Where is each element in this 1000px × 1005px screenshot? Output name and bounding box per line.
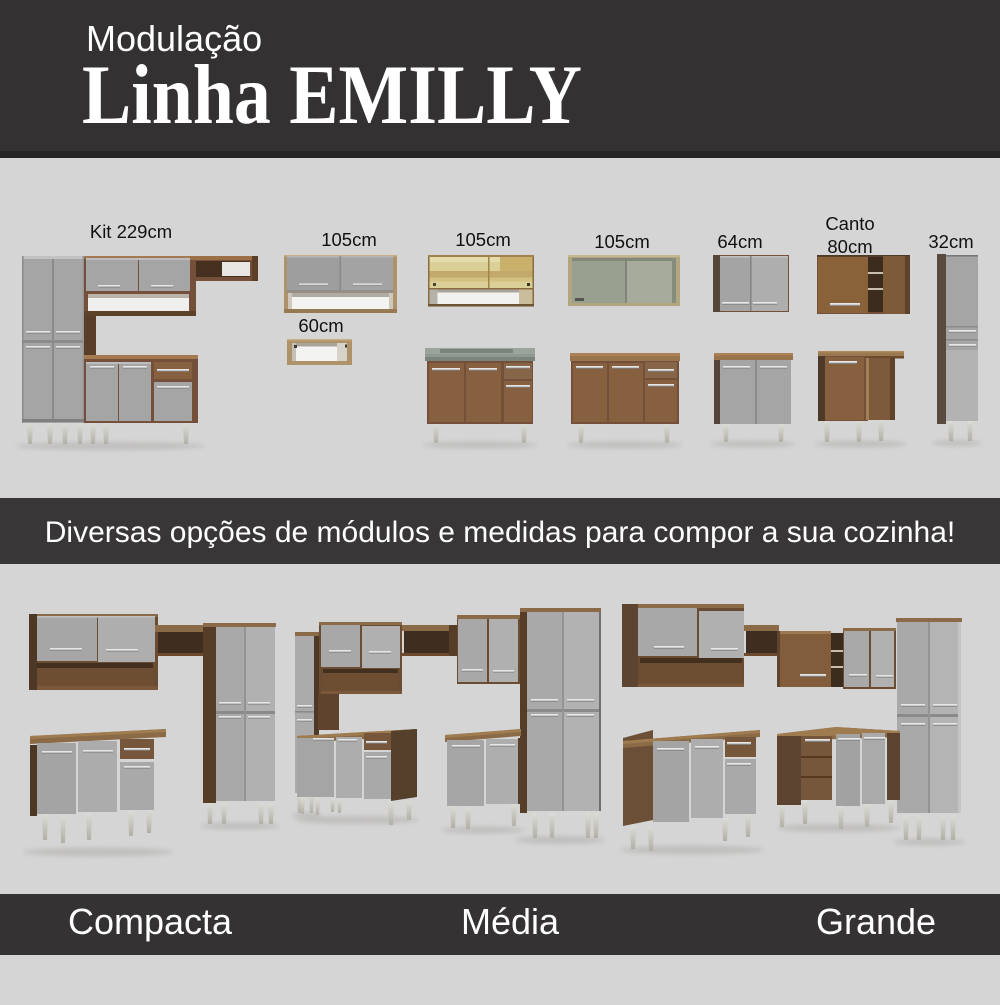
svg-text:Compacta: Compacta [68, 901, 233, 942]
svg-text:64cm: 64cm [717, 231, 762, 252]
svg-text:60cm: 60cm [298, 315, 343, 336]
svg-text:Canto: Canto [825, 213, 874, 234]
svg-text:Diversas opções de módulos e m: Diversas opções de módulos e medidas par… [45, 516, 956, 549]
svg-text:80cm: 80cm [827, 236, 872, 257]
svg-text:Grande: Grande [816, 901, 936, 942]
svg-text:105cm: 105cm [594, 231, 650, 252]
svg-text:32cm: 32cm [928, 231, 973, 252]
svg-text:Média: Média [461, 901, 560, 942]
svg-text:Linha EMILLY: Linha EMILLY [82, 48, 582, 142]
svg-text:Kit 229cm: Kit 229cm [90, 221, 172, 242]
svg-text:105cm: 105cm [455, 229, 511, 250]
svg-text:105cm: 105cm [321, 229, 377, 250]
